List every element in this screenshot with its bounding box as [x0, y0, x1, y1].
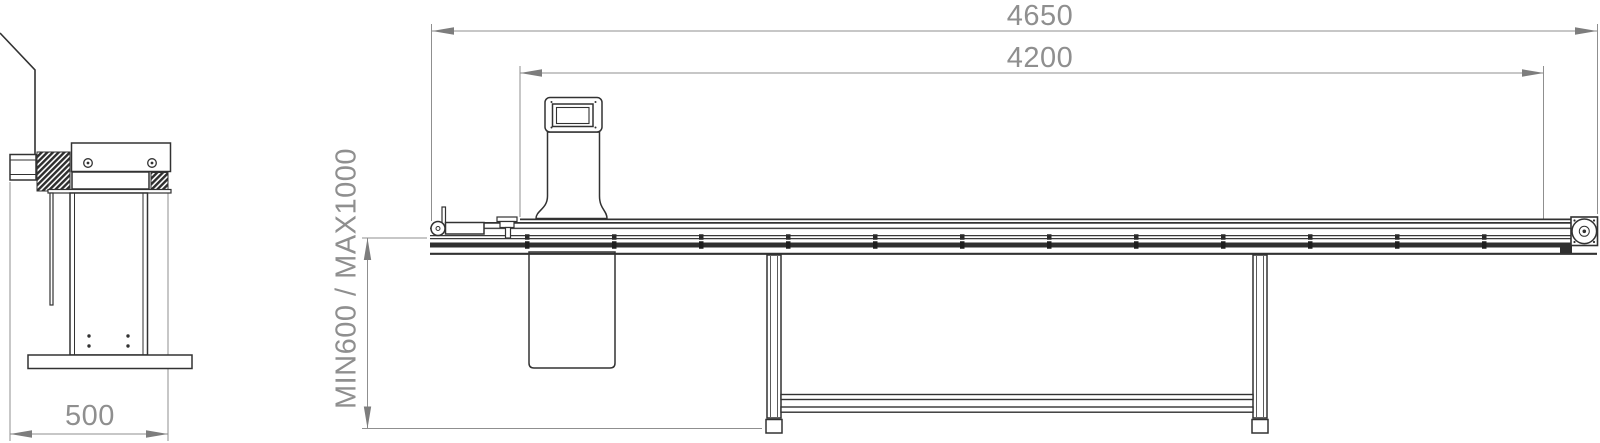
mounting-hole-4	[126, 344, 129, 347]
motor-shaft-dot	[1583, 230, 1587, 234]
dimension-label-overall-length: 4650	[960, 1, 1120, 32]
arrowhead-500-left	[10, 430, 32, 437]
diagonal-arm-line	[0, 33, 35, 155]
end-spacer-block	[1560, 248, 1572, 254]
side-bearing-block	[151, 173, 168, 191]
display-screen	[557, 108, 590, 124]
left-foot	[766, 420, 782, 434]
column-pedestal	[529, 252, 615, 368]
dimension-label-conveyor-length: 4200	[960, 43, 1120, 74]
belt-tensioner-end	[431, 207, 517, 238]
end-view	[0, 33, 192, 369]
arrowhead-4200-right	[1522, 69, 1544, 76]
cross-bar-lower	[781, 407, 1253, 412]
arrowhead-4650-right	[1575, 27, 1597, 34]
drive-motor	[1571, 217, 1598, 246]
plate-screw-right-dot	[151, 162, 154, 165]
head-screw-br	[595, 127, 597, 129]
side-view-understructure	[529, 252, 1268, 433]
arrowhead-4650-left	[432, 27, 454, 34]
left-leg	[767, 255, 781, 418]
column-end-view	[70, 193, 148, 355]
dimension-4200	[520, 66, 1544, 219]
belt-clamp-body	[500, 222, 514, 228]
column-neck-flare	[536, 132, 607, 219]
rail-cross-section	[72, 172, 149, 189]
end-roller-hub	[436, 227, 440, 231]
side-rod	[50, 193, 53, 305]
plate-screw-left-dot	[87, 162, 90, 165]
mounting-hole-1	[87, 334, 90, 337]
right-foot	[1252, 420, 1268, 434]
channel-bracket	[10, 155, 36, 181]
motor-bolt-tl	[1573, 219, 1575, 221]
head-screw-tl	[551, 101, 553, 103]
mounting-hole-2	[87, 344, 90, 347]
motor-bolt-tr	[1593, 219, 1595, 221]
belt-clamp-stem	[506, 228, 511, 239]
arrowhead-height-bottom	[364, 407, 371, 429]
mounting-hole-3	[126, 334, 129, 337]
dimension-label-working-height: MIN600 / MAX1000	[332, 129, 363, 429]
base-plate	[28, 355, 192, 369]
cross-bar-upper	[781, 395, 1253, 400]
tension-slider	[446, 223, 485, 235]
belt-clamp-cap	[497, 217, 517, 222]
head-screw-tr	[595, 101, 597, 103]
right-leg	[1253, 255, 1267, 418]
measuring-column	[536, 98, 607, 219]
arrowhead-height-top	[364, 238, 371, 260]
dimension-label-end-view-width: 500	[40, 401, 140, 432]
arrowhead-4200-left	[520, 69, 542, 76]
technical-drawing-canvas: 4650 4200 MIN600 / MAX1000 500	[0, 0, 1600, 443]
head-screw-bl	[551, 127, 553, 129]
conveyor-rails	[430, 219, 1597, 253]
motor-bolt-br	[1593, 241, 1595, 243]
drawing-linework	[0, 0, 1600, 443]
motor-bolt-bl	[1573, 241, 1575, 243]
arrowhead-500-right	[146, 430, 168, 437]
bearing-block-hatch	[37, 152, 70, 191]
